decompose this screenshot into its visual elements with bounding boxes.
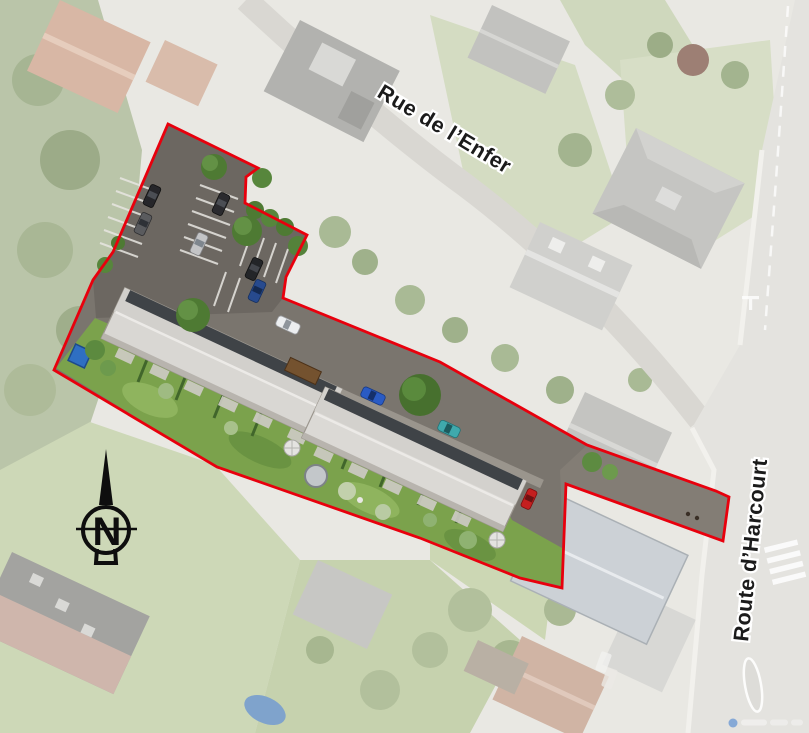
round-pool bbox=[305, 465, 327, 487]
watermark-dot-icon bbox=[729, 719, 738, 728]
site-plan-page: Rue de l’Enfer Route d’Harcourt N bbox=[0, 0, 809, 733]
tree bbox=[399, 374, 441, 416]
garden-table bbox=[357, 497, 363, 503]
parasol bbox=[489, 532, 505, 548]
parasol bbox=[284, 440, 300, 456]
person bbox=[686, 512, 690, 516]
compass-north-letter: N bbox=[93, 510, 122, 554]
person bbox=[695, 516, 699, 520]
aerial-view: Rue de l’Enfer Route d’Harcourt N bbox=[0, 0, 809, 733]
tree bbox=[232, 216, 262, 246]
tree bbox=[176, 298, 210, 332]
tree bbox=[201, 154, 227, 180]
